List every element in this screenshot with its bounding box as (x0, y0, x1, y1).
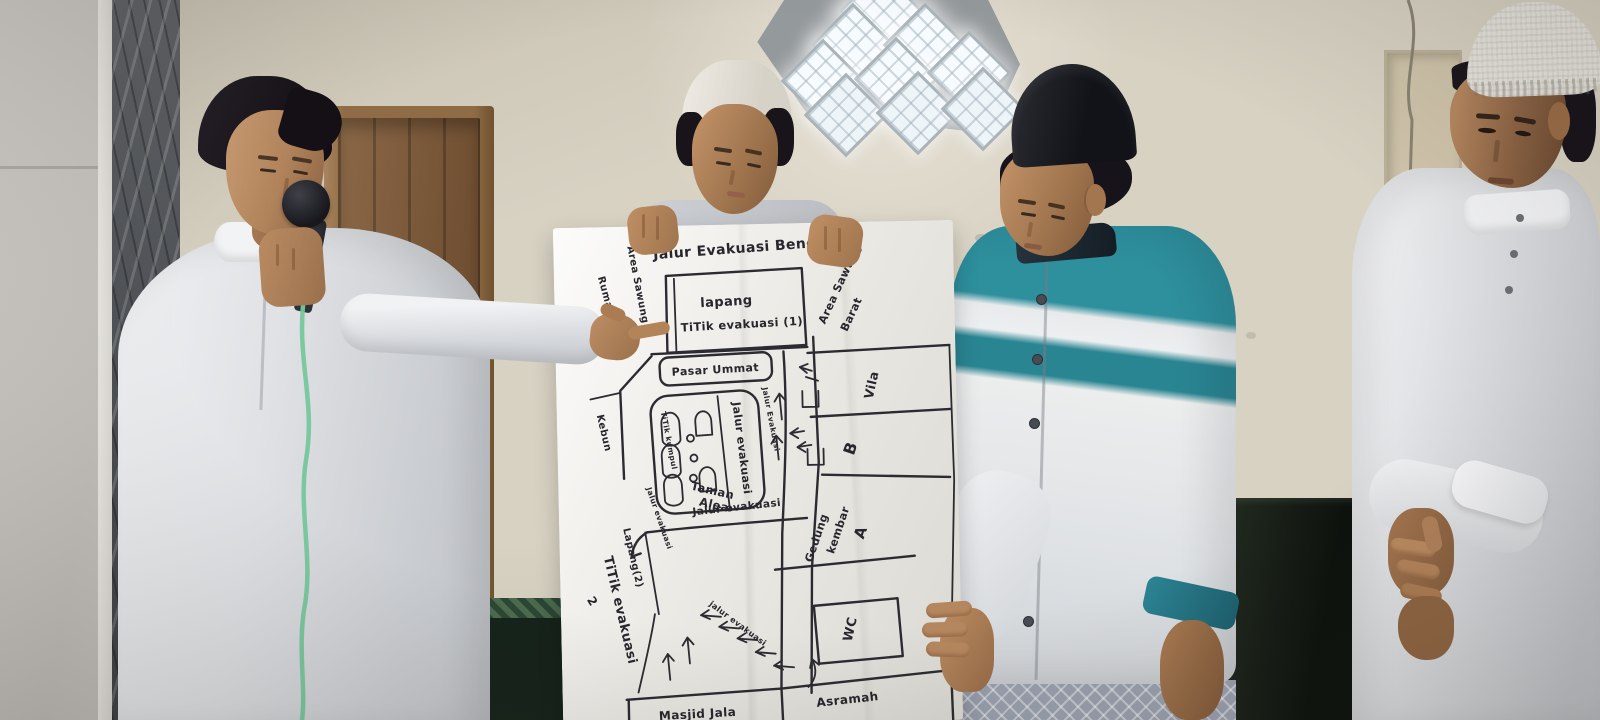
boy3-finger (926, 600, 973, 618)
hanging-cable (1390, 0, 1450, 190)
vila-box-bottom (811, 409, 951, 417)
road-bottom-left-curve (637, 614, 657, 692)
label-jalur-evakuasi-bottom: jalur evakuasi (707, 599, 768, 648)
right-edge (945, 345, 957, 640)
arrow-corner (806, 377, 818, 381)
boy2-hand-right (805, 212, 865, 269)
bottom-divider (781, 689, 783, 720)
road-left-spur (590, 393, 620, 400)
arrow-left (790, 428, 804, 438)
label-wc: WC (841, 616, 861, 643)
masjid-box-left (629, 700, 630, 720)
boy2-knuckle-line (656, 216, 659, 240)
boy3-button (1029, 418, 1040, 429)
boy3-left-hand (1160, 620, 1224, 720)
label-vila: Vila (861, 370, 882, 401)
person-figure (663, 474, 683, 506)
boy4-ear (1548, 102, 1570, 140)
mosque-room-scene: Jalur Evakuasi Bencana Rumah Area Sawung… (0, 0, 1600, 720)
person-dot (687, 435, 694, 442)
arrow-up (774, 393, 786, 419)
marble-panel-seam (0, 166, 112, 169)
vila-box-top (807, 345, 949, 353)
boy3-finger (926, 641, 970, 658)
boy2-knuckle-line (838, 228, 841, 252)
arrow-corner (800, 364, 812, 373)
boy2-knuckle-line (642, 214, 645, 238)
label-area-sawung-barat-line2: Barat (838, 295, 865, 333)
arrow-left (797, 442, 811, 452)
label-asramah: Asramah (816, 689, 880, 710)
boy4-button (1505, 286, 1513, 294)
boy3-finger (922, 621, 968, 638)
road-lapang2 (645, 532, 659, 614)
label-lapang-titik1-line1: lapang (700, 293, 753, 311)
boy4-robe (1352, 168, 1600, 720)
evacuation-map-drawing: Jalur Evakuasi Bencana Rumah Area Sawung… (553, 220, 963, 720)
u-connector (807, 449, 823, 465)
road-left (620, 356, 655, 479)
arrow-up (663, 654, 675, 680)
bottom-boxes-top (626, 670, 952, 700)
boy3-button (1036, 294, 1047, 305)
label-kebun: Kebun (594, 414, 613, 453)
arrow-up (682, 637, 694, 663)
boy3-button (1032, 354, 1043, 365)
lapang1-box (666, 268, 807, 353)
boy3-ear (1084, 184, 1106, 216)
lapang1-box-double-line (674, 279, 677, 351)
label-lapang-titik1-line2: TiTik evakuasi (1) (680, 314, 803, 335)
label-blok-b: B (839, 439, 861, 457)
label-jalur-evakuasi-diagonal: Jalur evakuasi (644, 485, 674, 550)
label-gedung-line1: Gedung (802, 512, 831, 564)
b-block-bottom (822, 472, 950, 480)
label-gedung-line2: kembar (824, 505, 852, 556)
label-pasar-ummat: Pasar Ummat (671, 361, 759, 379)
boy3-button (1023, 616, 1034, 627)
label-jalur-evakuasi-taman: Jalur evakuasi (729, 400, 754, 495)
boy1-knuckle-line (292, 248, 295, 270)
person-figure (695, 411, 713, 436)
microphone-head (282, 180, 330, 228)
evacuation-poster: Jalur Evakuasi Bencana Rumah Area Sawung… (553, 220, 963, 720)
boy2-hand-left (626, 204, 681, 257)
boy4-hand-lower (1398, 596, 1454, 660)
arrow-curved (808, 659, 820, 687)
wall-smudge (1246, 332, 1256, 339)
boy4-button (1510, 250, 1518, 258)
label-masjid-jala: Masjid Jala (659, 705, 737, 720)
boy2-knuckle-line (824, 226, 827, 250)
label-titik-evakuasi-2-num: 2 (584, 594, 601, 609)
boy1-knuckle-line (276, 244, 279, 266)
arrow-left (756, 647, 776, 656)
arrow-left (774, 660, 794, 669)
label-area-sawung: Area Sawung (624, 245, 650, 324)
label-gedung-line3: A (850, 524, 871, 541)
boy4-button (1516, 214, 1524, 222)
boy4-collar (1463, 188, 1572, 235)
gedung-bottom (775, 556, 915, 570)
wc-box (814, 598, 903, 663)
person-dot (690, 454, 697, 461)
